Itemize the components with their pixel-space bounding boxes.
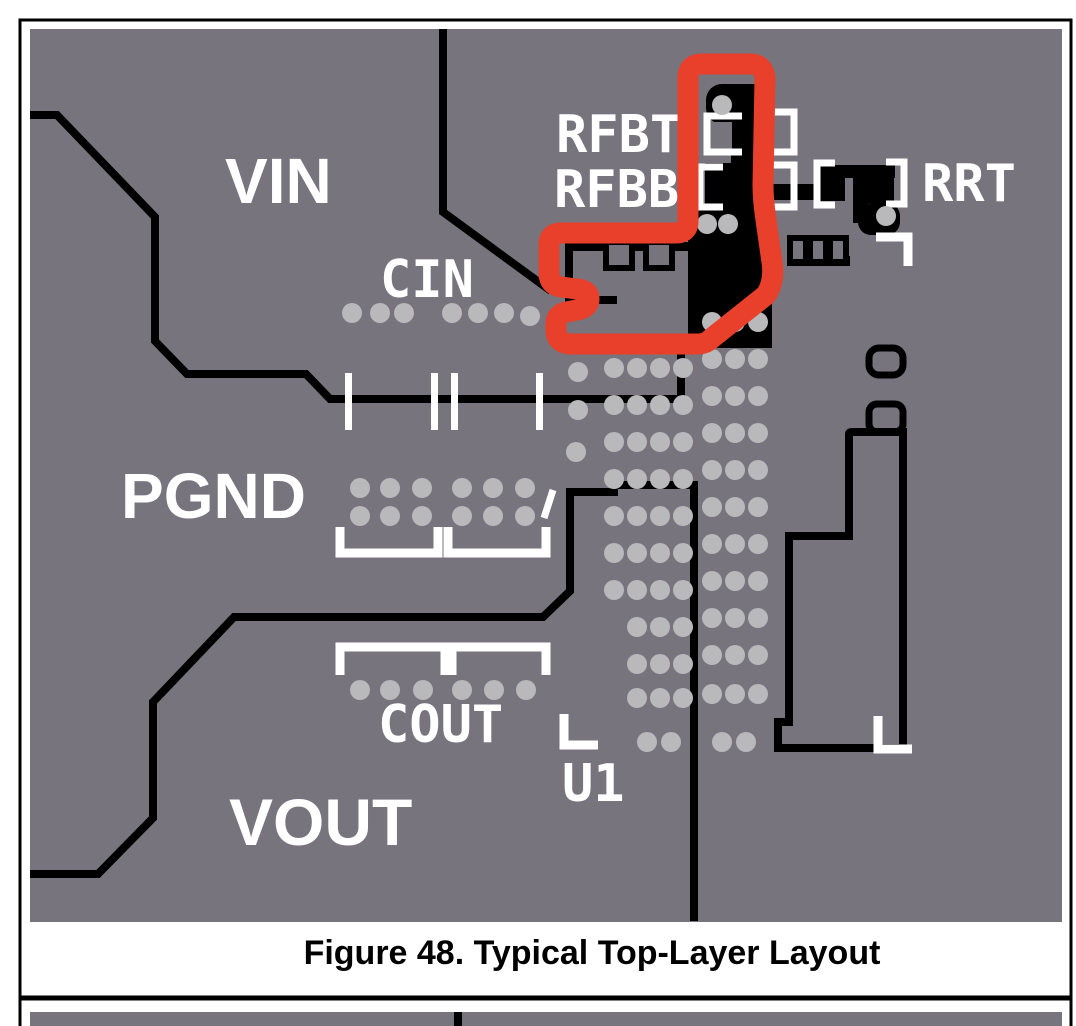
rrt-left-pad [818, 165, 845, 201]
via-center-left-lower [673, 654, 693, 674]
via-center-left-grid [604, 358, 624, 378]
via-center-right-grid [725, 497, 745, 517]
via-center-left-grid [604, 506, 624, 526]
via-center-left-lower [650, 688, 670, 708]
label-cout: COUT [378, 695, 503, 755]
via-center-left-grid [604, 580, 624, 600]
via-center-right-grid [748, 571, 768, 591]
comb-pad-2 [810, 238, 826, 262]
via-cin-row [520, 306, 540, 326]
via-center-right-grid [748, 684, 768, 704]
via-center-left-lower [627, 654, 647, 674]
via-pgnd-grid [380, 478, 400, 498]
cin-cap-tick-1 [345, 373, 352, 430]
label-rfbb: RFBB [554, 160, 679, 220]
via-scatter [566, 442, 586, 462]
via-center-right-grid [725, 608, 745, 628]
via-pgnd-grid [412, 478, 432, 498]
via-pgnd-grid [483, 506, 503, 526]
via-pgnd-grid [380, 506, 400, 526]
next-figure-partial [20, 999, 1071, 1026]
via-center-left-grid [604, 469, 624, 489]
via-center-right-grid [748, 608, 768, 628]
via-center-right-grid [725, 571, 745, 591]
figure-caption: Figure 48. Typical Top-Layer Layout [108, 934, 1076, 978]
via-center-left-grid [673, 395, 693, 415]
via-cout-row [350, 680, 370, 700]
via-center-left-grid [627, 395, 647, 415]
label-rfbt: RFBT [556, 105, 681, 165]
rfbt-bracket-gap [712, 122, 732, 150]
via-center-left-grid [650, 543, 670, 563]
cin-cap-tick-2 [431, 373, 438, 430]
label-vin: VIN [225, 145, 332, 217]
via-pgnd-grid [515, 478, 535, 498]
via-scatter [712, 95, 732, 115]
via-center-right-grid [725, 423, 745, 443]
via-scatter [876, 206, 896, 226]
via-center-left-grid [604, 543, 624, 563]
via-pgnd-grid [515, 506, 535, 526]
via-center-left-grid [627, 469, 647, 489]
via-center-left-lower [650, 654, 670, 674]
via-cin-row [494, 303, 514, 323]
via-center-right-grid [725, 460, 745, 480]
via-center-left-grid [627, 543, 647, 563]
via-center-left-grid [650, 506, 670, 526]
via-center-left-grid [650, 358, 670, 378]
via-pgnd-grid [350, 478, 370, 498]
via-center-left-grid [650, 395, 670, 415]
label-rrt: RRT [922, 154, 1016, 214]
via-center-left-grid [673, 432, 693, 452]
via-center-left-lower [673, 617, 693, 637]
cin-cap-tick-4 [536, 373, 543, 430]
via-center-right-grid [725, 386, 745, 406]
label-cin: CIN [380, 250, 474, 310]
via-center-right-grid [702, 423, 722, 443]
via-pgnd-grid [452, 506, 472, 526]
via-center-left-grid [673, 506, 693, 526]
via-center-left-grid [673, 358, 693, 378]
datasheet-figure-page: VIN PGND VOUT CIN COUT U1 RFBT RFBB RRT … [0, 0, 1076, 1026]
via-center-left-grid [604, 395, 624, 415]
via-center-left-grid [604, 432, 624, 452]
via-scatter [718, 214, 738, 234]
via-center-right-grid [725, 349, 745, 369]
via-center-right-grid [702, 534, 722, 554]
via-center-left-lower [650, 617, 670, 637]
next-figure-board [30, 1012, 1062, 1026]
via-center-right-grid [725, 534, 745, 554]
via-center-right-grid [748, 497, 768, 517]
next-figure-trace [454, 1012, 462, 1026]
via-center-right-grid [748, 534, 768, 554]
via-center-right-grid [702, 571, 722, 591]
via-center-left-grid [673, 543, 693, 563]
via-center-right-grid [702, 684, 722, 704]
via-pgnd-grid [483, 478, 503, 498]
via-scatter [712, 732, 732, 752]
via-center-right-grid [725, 645, 745, 665]
via-scatter [568, 362, 588, 382]
via-center-right-grid [702, 608, 722, 628]
label-vout: VOUT [229, 785, 412, 859]
via-scatter [736, 732, 756, 752]
rrt-right-pad [868, 165, 894, 203]
via-center-right-grid [702, 645, 722, 665]
via-pgnd-grid [452, 478, 472, 498]
via-pgnd-grid [350, 506, 370, 526]
label-pgnd: PGND [121, 460, 306, 532]
via-center-right-grid [748, 386, 768, 406]
via-cin-row [342, 303, 362, 323]
via-center-left-grid [627, 506, 647, 526]
cin-cap-tick-3 [451, 373, 458, 430]
via-center-left-grid [673, 580, 693, 600]
via-center-left-lower [627, 688, 647, 708]
figure-48-graphic: VIN PGND VOUT CIN COUT U1 RFBT RFBB RRT [0, 0, 1076, 1026]
via-scatter [568, 400, 588, 420]
via-center-left-lower [627, 617, 647, 637]
via-center-right-grid [725, 684, 745, 704]
via-center-left-grid [627, 432, 647, 452]
via-center-left-lower [673, 688, 693, 708]
comb-pad-3 [830, 238, 846, 262]
via-scatter [637, 732, 657, 752]
fb-pad-window-1 [606, 242, 632, 268]
fb-pad-window-2 [646, 242, 672, 268]
via-cout-row [516, 680, 536, 700]
via-center-left-grid [650, 469, 670, 489]
via-center-left-grid [627, 358, 647, 378]
via-center-left-grid [650, 432, 670, 452]
via-center-left-grid [673, 469, 693, 489]
via-center-right-grid [748, 645, 768, 665]
via-scatter [661, 732, 681, 752]
via-center-left-grid [650, 580, 670, 600]
via-center-left-grid [627, 580, 647, 600]
via-center-right-grid [748, 460, 768, 480]
via-center-right-grid [702, 497, 722, 517]
via-center-right-grid [748, 349, 768, 369]
comb-pad-1 [790, 238, 806, 262]
label-u1: U1 [562, 754, 625, 814]
via-pgnd-grid [412, 506, 432, 526]
via-center-right-grid [702, 386, 722, 406]
via-scatter [697, 214, 717, 234]
via-center-right-grid [702, 460, 722, 480]
via-center-right-grid [748, 423, 768, 443]
